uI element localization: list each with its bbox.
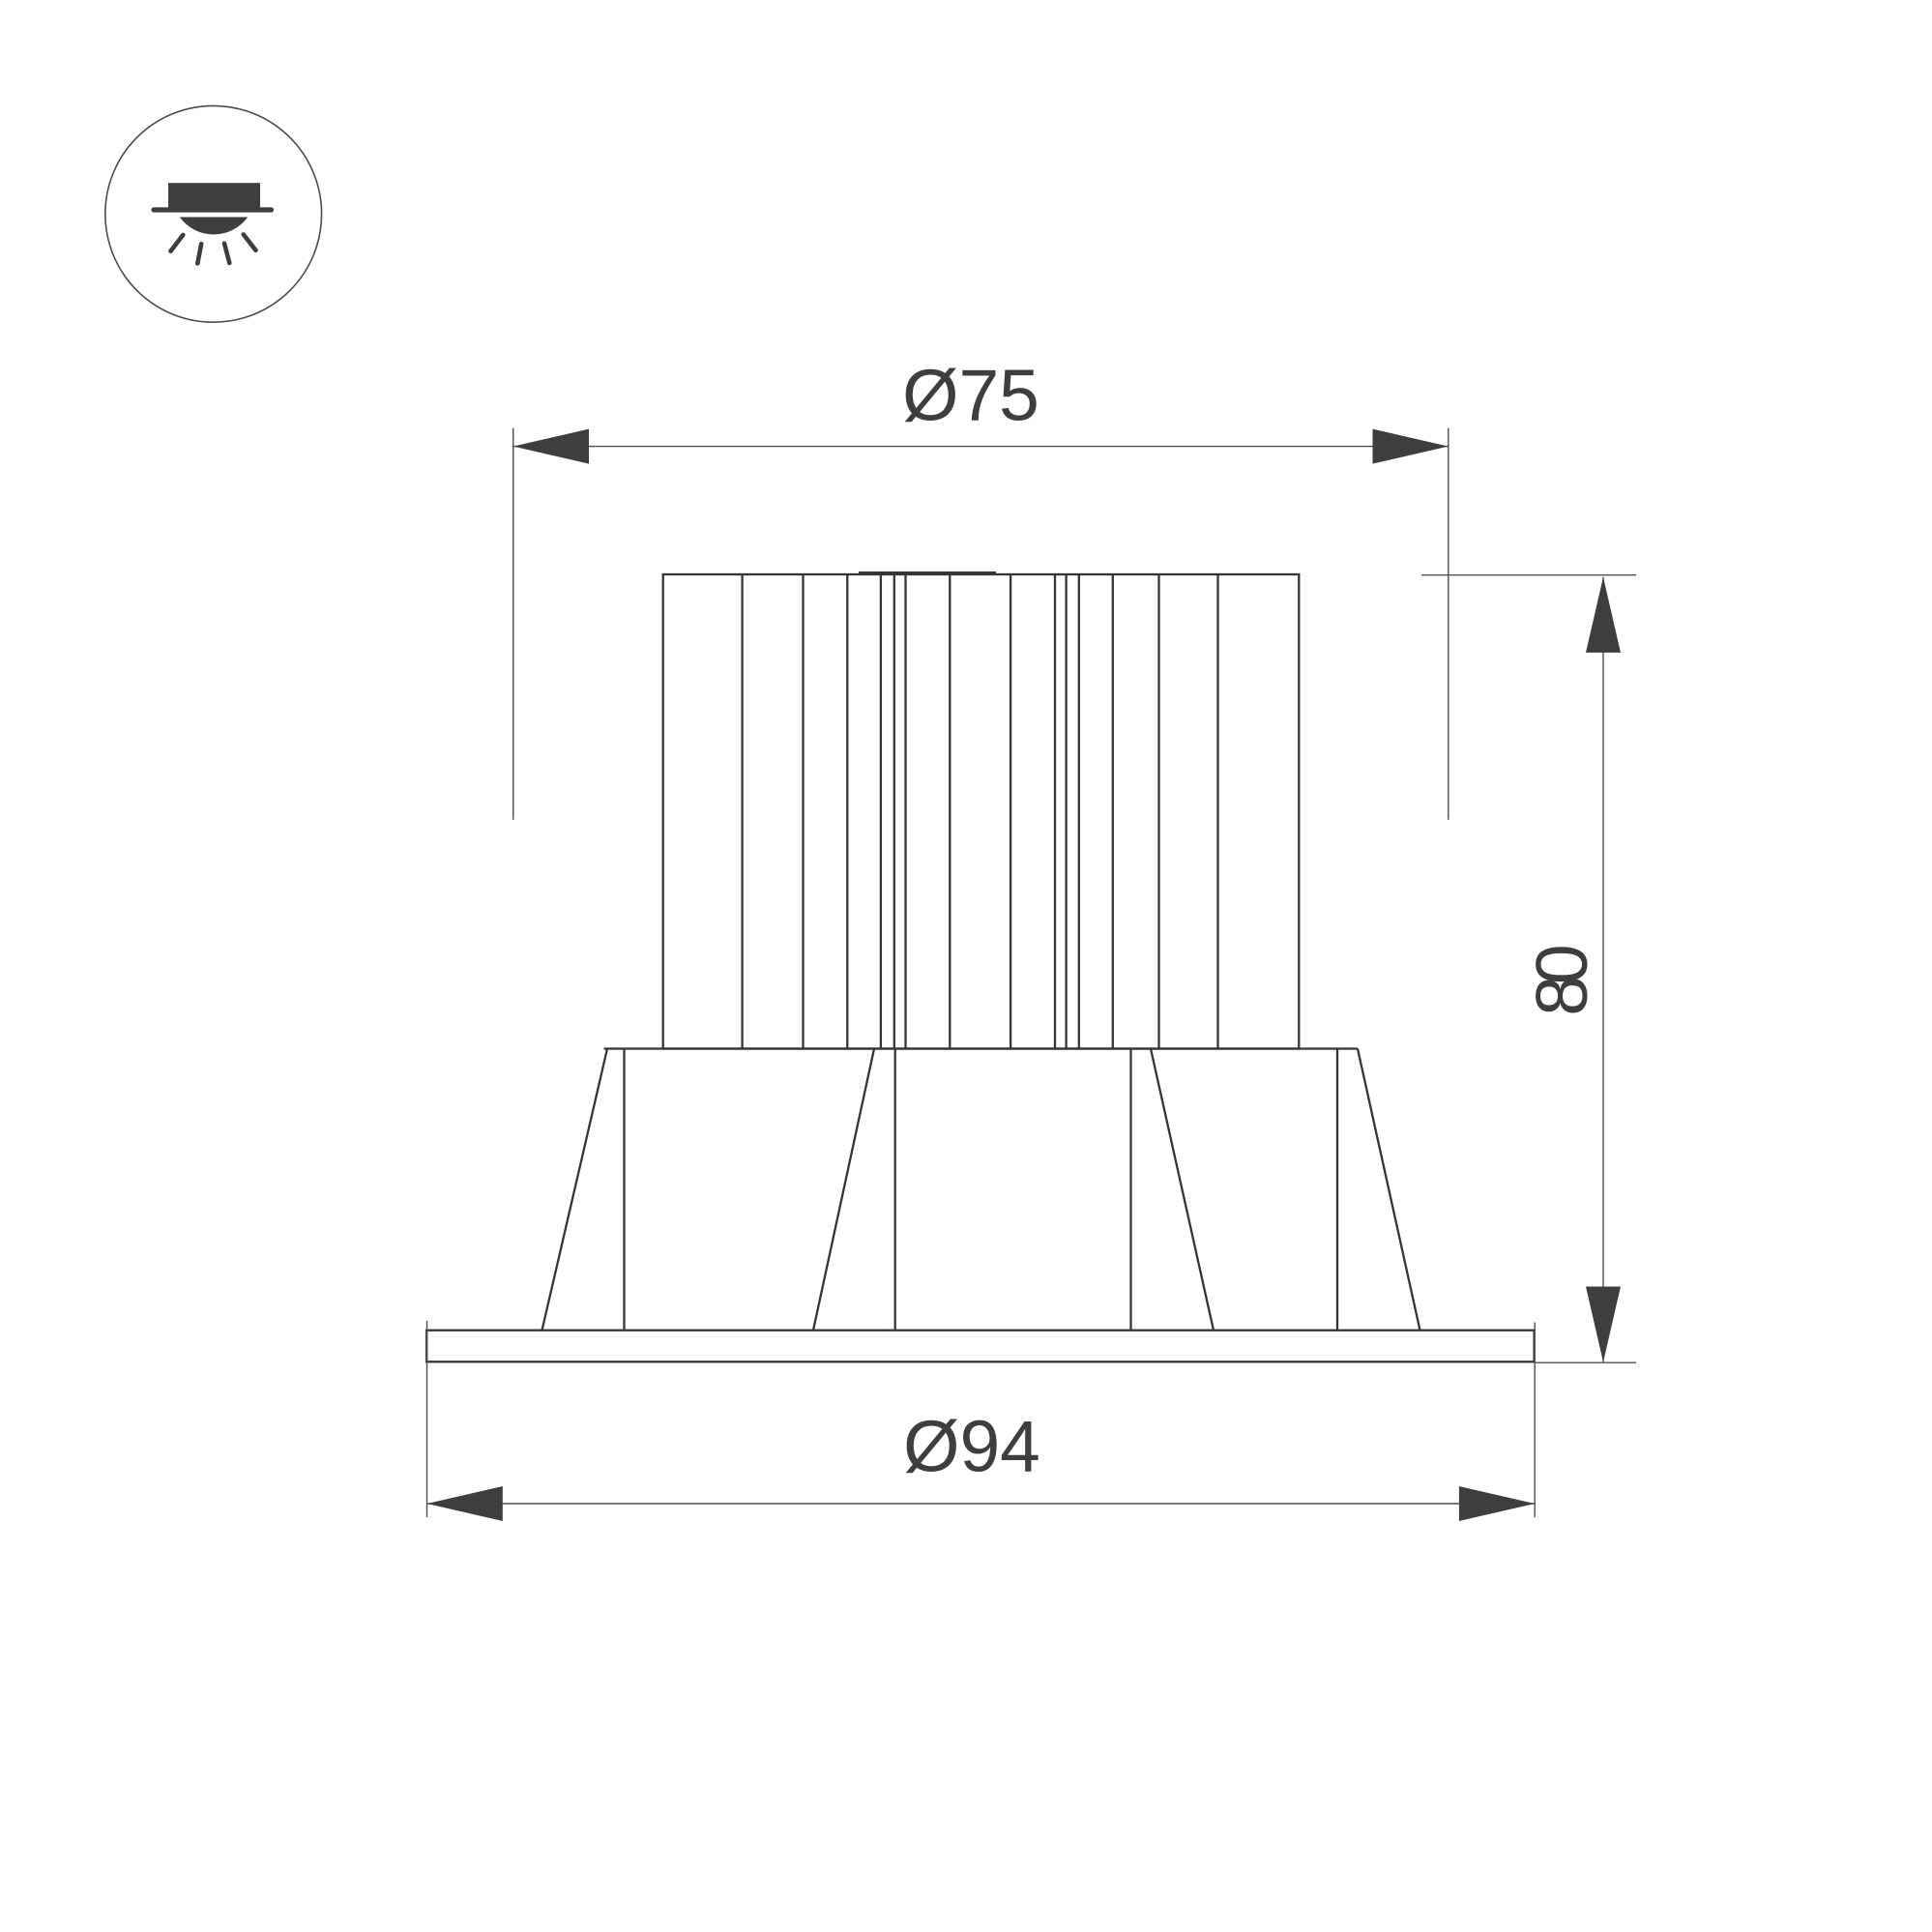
svg-text:80: 80 xyxy=(1521,947,1602,1016)
svg-text:Ø94: Ø94 xyxy=(903,1406,1040,1487)
svg-text:Ø75: Ø75 xyxy=(902,355,1039,436)
